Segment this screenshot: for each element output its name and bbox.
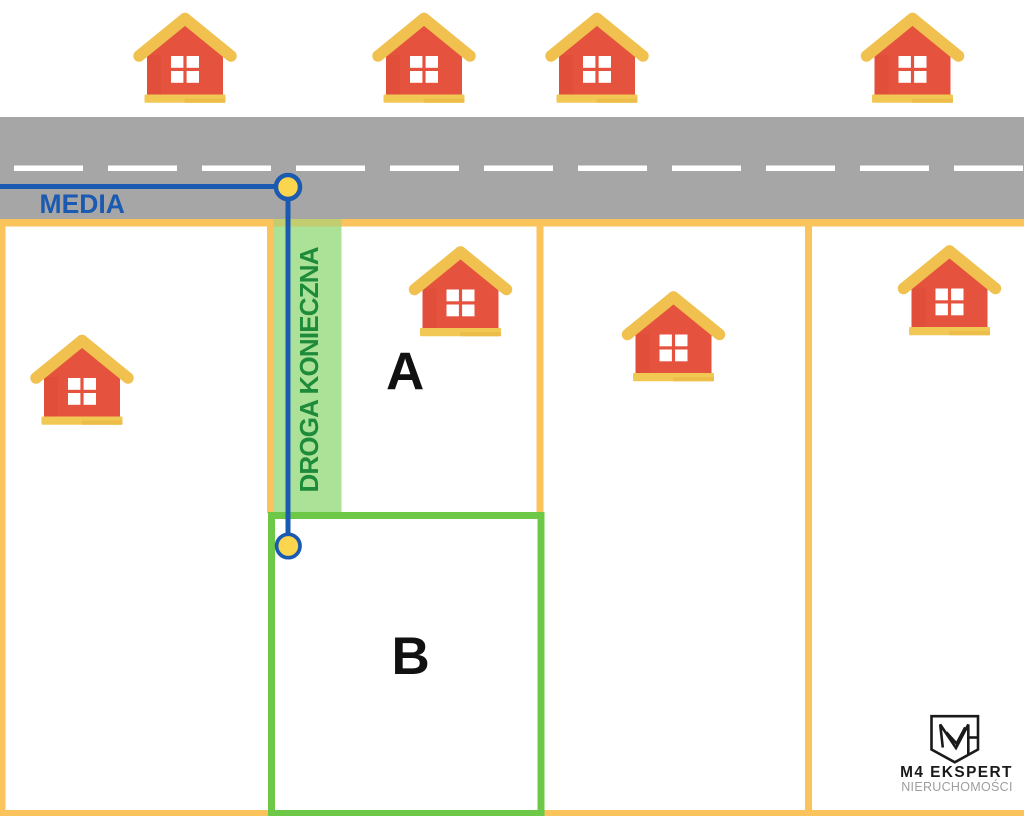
svg-text:MEDIA: MEDIA	[40, 189, 125, 219]
svg-text:DROGA KONIECZNA: DROGA KONIECZNA	[294, 246, 324, 492]
svg-text:A: A	[386, 343, 424, 402]
svg-text:M4 EKSPERT: M4 EKSPERT	[900, 764, 1013, 781]
svg-text:B: B	[392, 627, 430, 686]
svg-text:NIERUCHOMOŚCI: NIERUCHOMOŚCI	[901, 779, 1013, 794]
